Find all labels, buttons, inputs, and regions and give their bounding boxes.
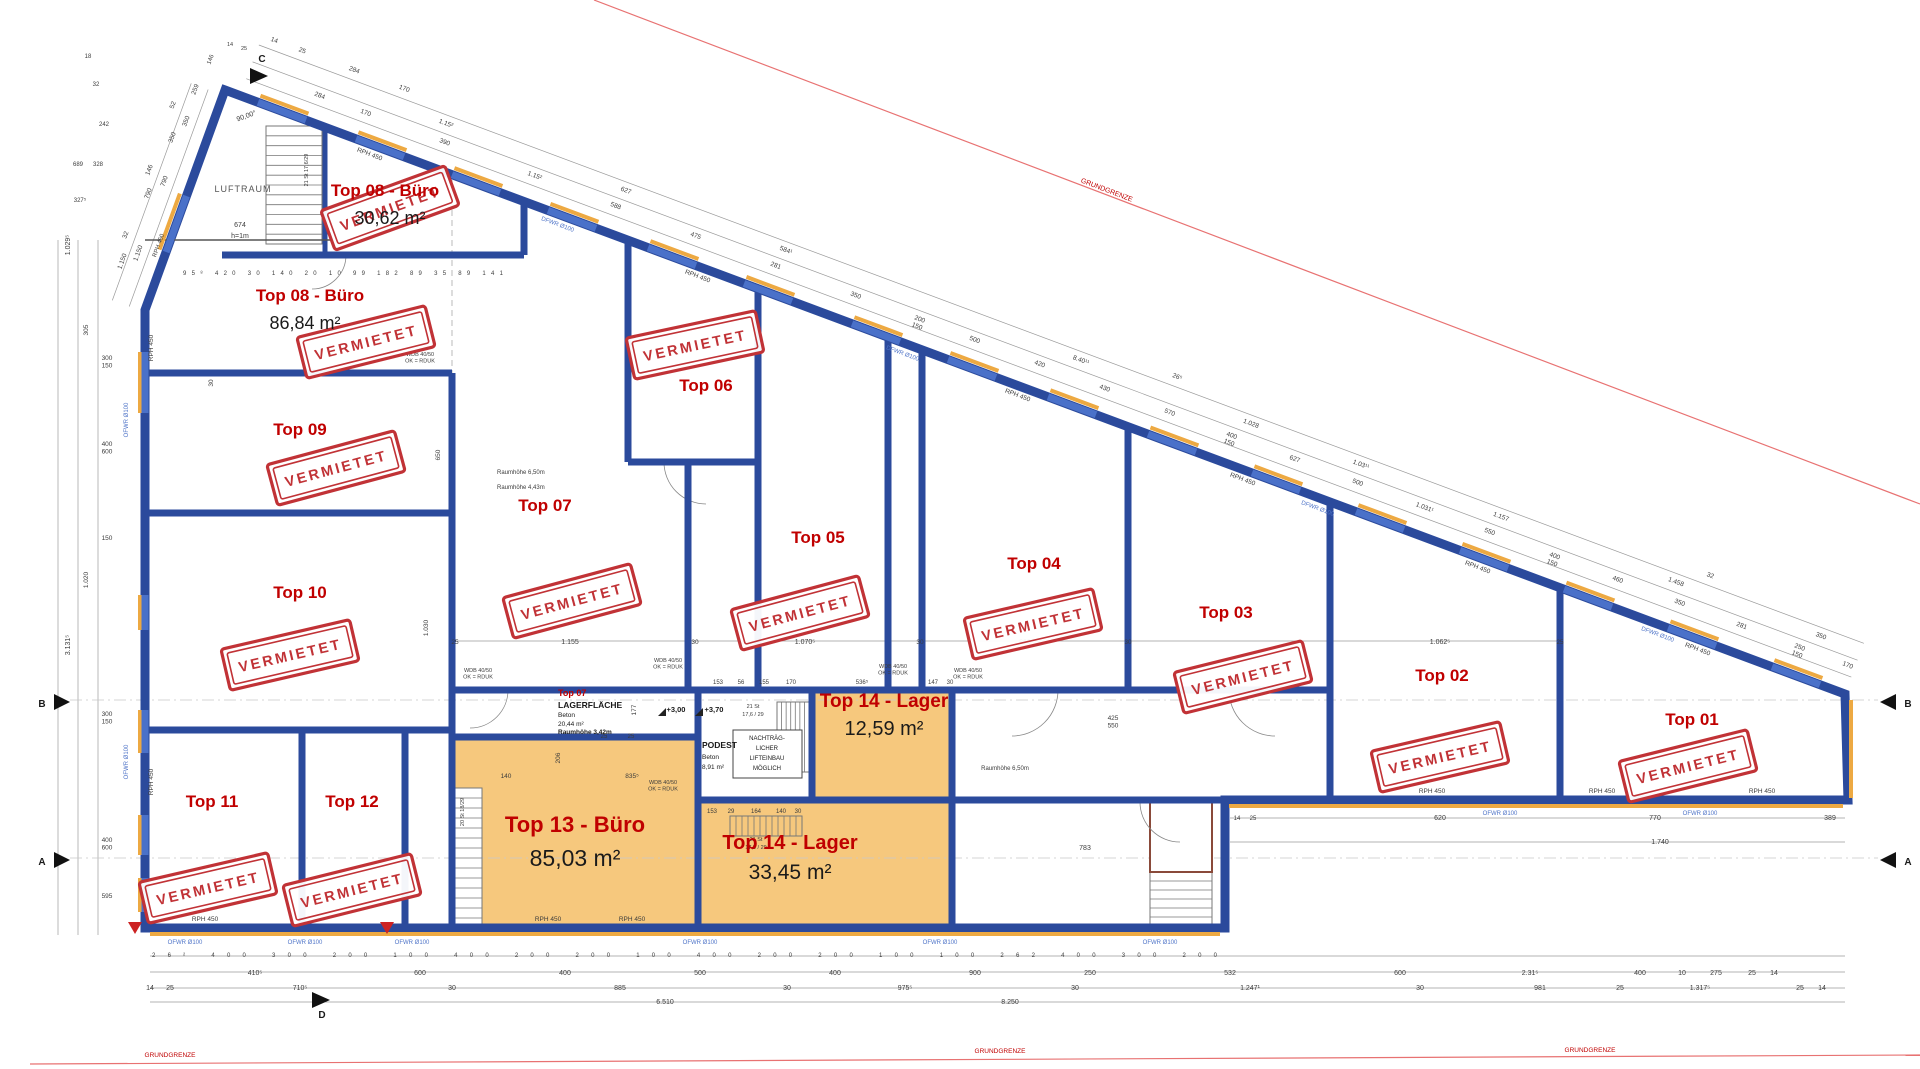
dim-label: 400 [829, 970, 841, 977]
annotation: 30 [208, 379, 215, 387]
annotation: 400600 [102, 837, 113, 852]
annotation: 259 [190, 83, 200, 96]
staircase [266, 126, 322, 244]
annotation: 170 [786, 680, 797, 686]
dim-label: 8.250 [1001, 999, 1019, 1006]
room-name: Top 09 [273, 420, 327, 439]
annotation: 1.740 [1651, 839, 1669, 846]
dim-label: 420 [1033, 359, 1046, 369]
dim-label: 1.150 [132, 244, 144, 262]
annotation: 1.030 [423, 619, 430, 636]
room-name: Top 07 [518, 496, 572, 515]
annotation: 164 [751, 809, 762, 815]
annotation: WDB 40/50OK = RDUK [653, 658, 683, 671]
dim-label: 30 [783, 985, 791, 992]
dim-label: 2.31⁵ [1522, 970, 1539, 977]
annotation: 783 [1079, 845, 1091, 852]
annotation: 300150 [102, 355, 113, 370]
annotation: 1.062⁵ [1430, 639, 1451, 646]
annotation: 18 [85, 54, 92, 60]
annotation: LUFTRAUM [215, 184, 272, 194]
fixture-box [1150, 802, 1212, 872]
dim-label: 975⁵ [898, 985, 913, 992]
room-label-top09: Top 09 [273, 420, 327, 439]
room-label-top12: Top 12 [325, 792, 379, 811]
room-name: Top 02 [1415, 666, 1469, 685]
section-marker-letter: D [318, 1010, 325, 1021]
dim-label: 627 [1288, 454, 1301, 464]
dim-label: 281 [1735, 621, 1748, 631]
dim-label: 275 [1710, 970, 1722, 977]
annotation: Beton [558, 712, 575, 719]
dim-label: 1.031¹ [1415, 501, 1435, 514]
dim-label: 900 [969, 970, 981, 977]
dim-label: 885 [614, 985, 626, 992]
stamp-vermietet: VERMIETET [1619, 730, 1757, 803]
section-marker-icon [1880, 694, 1896, 710]
room-name: Top 06 [679, 376, 733, 395]
door-swing [1012, 690, 1058, 736]
dim-label: 350 [849, 291, 862, 301]
annotation: OFWR Ø100 [1483, 811, 1518, 817]
stamp-vermietet: VERMIETET [267, 431, 405, 506]
grundgrenze-label: GRUNDGRENZE [1080, 178, 1134, 204]
annotation: LIFTEINBAU [750, 756, 785, 762]
dim-label: 460 [1611, 575, 1624, 585]
annotation: 835⁵ [625, 773, 639, 780]
dim-label: 584¹ [779, 245, 794, 256]
dim-label: 14 [1770, 970, 1778, 977]
annotation: Raumhöhe 4,43m [497, 485, 545, 491]
room-area: 85,03 m² [530, 845, 621, 871]
dim-label: 500 [1351, 478, 1364, 488]
annotation: 206 [555, 752, 562, 763]
dim-label: 500 [968, 335, 981, 345]
room-area: 33,45 m² [749, 861, 832, 884]
annotation: OFWR Ø100 [124, 744, 130, 779]
dim-label: 390 [438, 137, 451, 147]
annotation: 25 [241, 46, 247, 52]
annotation: 1.020 [83, 571, 90, 588]
room-name: Top 12 [325, 792, 379, 811]
staircase [1150, 872, 1212, 926]
annotation: 177 [631, 704, 638, 715]
annotation: Raumhöhe 6,50m [497, 470, 545, 476]
dim-label: 600 [414, 970, 426, 977]
room-label-top11: Top 11 [186, 792, 239, 811]
dim-label: 14 [1818, 985, 1826, 992]
annotation: 146 [207, 53, 216, 65]
annotation: OFWR Ø100 [923, 940, 958, 946]
dim-label: 30 [1416, 985, 1424, 992]
dim-label: 1.15² [438, 118, 455, 130]
dim-label: 32 [1706, 571, 1716, 580]
room-label-top10: Top 10 [273, 583, 327, 602]
dim-label: 284 [348, 65, 361, 75]
dim-label: 32 [121, 230, 130, 240]
annotation: 3.131⁵ [65, 635, 72, 656]
annotation: 56 [738, 680, 745, 686]
annotation: OFWR Ø100 [168, 940, 203, 946]
stamp-vermietet: VERMIETET [964, 589, 1102, 660]
annotation: RPH 450 [148, 768, 155, 795]
dim-label: 170 [1841, 660, 1854, 670]
level-marker-icon [658, 708, 666, 716]
annotation: 770 [1649, 815, 1661, 822]
dim-label: 1.03¹¹ [1352, 459, 1371, 472]
dim-label: 25 [1796, 985, 1804, 992]
annotation: PODEST [702, 740, 738, 750]
dim-label: 52 [169, 100, 178, 110]
annotation: RPH 450 [148, 334, 155, 361]
annotation: OFWR Ø100 [683, 940, 718, 946]
room-name: Top 01 [1665, 710, 1719, 729]
annotation: 790 [143, 187, 153, 200]
annotation: 140 [776, 809, 787, 815]
annotation: 30 [916, 639, 924, 646]
dim-label: 146 [144, 163, 154, 176]
annotation: +3,00 [667, 705, 686, 714]
annotation: 155 [759, 680, 770, 686]
annotation: OFWR Ø100 [1143, 940, 1178, 946]
annotation: 30 [1124, 639, 1132, 646]
annotation: 30 [947, 680, 954, 686]
section-marker-icon [312, 992, 330, 1008]
room-name: Top 14 - Lager [820, 691, 949, 712]
dim-label: 8.40¹¹ [1072, 354, 1091, 367]
stamp-vermietet: VERMIETET [139, 853, 277, 924]
annotation: +3,70 [705, 705, 724, 714]
dim-label: 350 [1673, 598, 1686, 608]
annotation: 1.029⁵ [65, 235, 72, 256]
annotation: WDB 40/50OK = RDUK [463, 668, 493, 681]
dim-label: 350 [181, 115, 191, 128]
room-name: Top 03 [1199, 603, 1253, 622]
annotation: RPH 450 [1749, 788, 1776, 795]
dim-label: 1.458 [1667, 576, 1685, 588]
floor-plan-page: Vermietungsplan Obergeschoss 2841703901.… [0, 0, 1920, 1069]
annotation: OFWR Ø100 [395, 940, 430, 946]
dim-label: 710⁵ [293, 985, 308, 992]
annotation: 689 [73, 162, 84, 168]
annotation: 536⁵ [856, 679, 869, 686]
dim-label: 1.028 [1242, 418, 1260, 430]
annotation: OFWR Ø100 [124, 402, 130, 437]
annotation: 620 [1434, 815, 1446, 822]
annotation: 389 [1824, 815, 1836, 822]
dim-label: 14 [146, 985, 154, 992]
dim-label: 1.317⁵ [1690, 985, 1711, 992]
dim-label: 570 [1163, 408, 1176, 418]
dim-label: 350 [1815, 631, 1828, 641]
annotation: 21 St 17,6/29 [304, 154, 310, 187]
dim-label: 400 [559, 970, 571, 977]
annotation: Beton [702, 754, 719, 761]
annotation: 25 [451, 639, 459, 646]
dim-label: 25 [1616, 985, 1624, 992]
annotation: RPH 450 [619, 916, 646, 923]
door-swing [470, 690, 508, 728]
section-marker-letter: A [1904, 857, 1911, 868]
stamp-vermietet: VERMIETET [221, 620, 359, 691]
annotation: 242 [99, 122, 110, 128]
room-label-top04: Top 04 [1007, 554, 1061, 573]
dim-label: 10 [1678, 970, 1686, 977]
annotation: 327⁵ [74, 197, 87, 204]
dim-label: 588 [609, 201, 622, 211]
room-name: Top 05 [791, 528, 845, 547]
stamp-vermietet: VERMIETET [503, 564, 641, 639]
room-name: Top 08 - Büro [256, 286, 364, 305]
section-marker-icon [54, 694, 70, 710]
dim-label: 170 [398, 84, 411, 94]
annotation: MÖGLICH [753, 765, 781, 772]
annotation: 29 [728, 809, 735, 815]
annotation: 150 [102, 535, 113, 542]
annotation: 147 [928, 680, 939, 686]
dim-label: 281 [769, 261, 782, 271]
annotation: 328 [93, 162, 104, 168]
annotation: NACHTRÄG- [749, 735, 785, 742]
annotation: LAGERFLÄCHE [558, 700, 623, 710]
annotation: Raumhöhe 6,50m [981, 766, 1029, 772]
annotation: Top 07 [558, 688, 586, 698]
annotation: OFWR Ø100 [288, 940, 323, 946]
annotation: 20,44 m² [558, 721, 584, 728]
annotation: WDB 40/50OK = RDUK [648, 780, 678, 793]
entry-arrow-icon [128, 922, 142, 934]
grundgrenze-label: GRUNDGRENZE [1565, 1047, 1617, 1054]
staircase [452, 788, 482, 928]
dim-label: 627 [620, 186, 633, 196]
annotation: 90,00° [235, 109, 257, 124]
annotation: RPH 450 [535, 916, 562, 923]
annotation: 30 [795, 809, 802, 815]
annotation: h=1m [231, 233, 249, 240]
dim-row: 95⁸ 420 30 140 20 10 99 182 89 35 89 141 [183, 270, 504, 277]
grundgrenze-label: GRUNDGRENZE [145, 1052, 197, 1059]
annotation: 30 [691, 639, 699, 646]
annotation: 1.150 [117, 252, 129, 270]
dim-label: 1.247¹ [1240, 985, 1261, 992]
dim-label: 790 [160, 175, 170, 188]
dim-label: 6.510 [656, 999, 674, 1006]
room-name: Top 14 - Lager [722, 832, 857, 854]
stamp-vermietet: VERMIETET [1174, 641, 1312, 714]
annotation: 1.070⁵ [795, 639, 816, 646]
room-name: Top 08 - Büro [331, 181, 439, 200]
floor-plan-drawing: 2841703901.15²58847528135020015050042043… [0, 0, 1920, 1069]
section-marker-letter: B [38, 699, 45, 710]
room-area: 12,59 m² [845, 718, 924, 740]
dim-label: 250150 [1791, 642, 1807, 660]
annotation: 140 [501, 773, 512, 780]
annotation: 17,6 / 29 [742, 712, 763, 718]
section-marker-icon [250, 68, 268, 84]
dim-label: 14 [270, 36, 280, 45]
annotation: 14 [227, 42, 233, 48]
dim-label: 550 [1483, 527, 1496, 537]
annotation: 20 St 18/29 [460, 798, 466, 826]
annotation: Raumhöhe 3,42m [558, 729, 612, 736]
room-label-top02: Top 02 [1415, 666, 1469, 685]
section-marker-letter: C [258, 54, 265, 65]
annotation: 25 [628, 734, 635, 740]
room-name: Top 11 [186, 792, 239, 811]
room-label-top05: Top 05 [791, 528, 845, 547]
annotation: RPH 450 [1419, 788, 1446, 795]
dim-label: 30 [448, 985, 456, 992]
annotation: 595 [102, 893, 113, 900]
annotation: 305 [83, 324, 90, 335]
annotation: 1.155 [561, 639, 579, 646]
annotation: RPH 450 [1589, 788, 1616, 795]
room-label-top06: Top 06 [679, 376, 733, 395]
annotation: 32 [93, 82, 100, 88]
dim-label: 981 [1534, 985, 1546, 992]
dim-label: 430 [1098, 383, 1111, 393]
dim-label: 1.15² [526, 170, 543, 182]
annotation: RPH 450 [192, 916, 219, 923]
annotation: 25 [1250, 816, 1257, 822]
room-label-top07: Top 07 [518, 496, 572, 515]
dim-label: 500 [694, 970, 706, 977]
annotation: 153 [713, 680, 724, 686]
dim-label: 170 [359, 108, 372, 118]
section-marker-letter: A [38, 857, 45, 868]
section-marker-letter: B [1904, 699, 1911, 710]
dim-label: 25 [166, 985, 174, 992]
annotation: 650 [435, 449, 442, 460]
annotation: 350 [167, 131, 177, 144]
dim-label: 475 [689, 231, 702, 241]
section-marker-icon [54, 852, 70, 868]
annotation: WDB 40/50OK = RDUK [878, 664, 908, 677]
annotation: 400600 [102, 441, 113, 456]
section-marker-icon [1880, 852, 1896, 868]
annotation: 14 [1234, 816, 1241, 822]
dim-label: 400 [1634, 970, 1646, 977]
dim-label: 600 [1394, 970, 1406, 977]
annotation: 25 [1556, 639, 1564, 646]
dim-label: 1.157 [1492, 511, 1510, 523]
dim-label: 250 [1084, 970, 1096, 977]
dim-label: 532 [1224, 970, 1236, 977]
room-label-top03: Top 03 [1199, 603, 1253, 622]
room-name: Top 10 [273, 583, 327, 602]
dim-label: 25 [298, 46, 308, 55]
annotation: WDB 40/50OK = RDUK [953, 668, 983, 681]
room-name: Top 04 [1007, 554, 1061, 573]
annotation: 300150 [102, 711, 113, 726]
annotation: 674 [234, 222, 246, 229]
dim-label: 400150 [1223, 431, 1239, 449]
dim-label: 410⁵ [248, 970, 263, 977]
room-label-top01: Top 01 [1665, 710, 1719, 729]
dim-label: 400150 [1546, 551, 1562, 569]
dim-label: 200150 [911, 314, 927, 332]
room-area: 86,84 m² [269, 313, 340, 333]
annotation: 153 [707, 809, 718, 815]
room-area: 30,62 m² [354, 208, 425, 228]
annotation: OFWR Ø100 [1683, 811, 1718, 817]
dim-label: 30 [1071, 985, 1079, 992]
annotation: LICHER [756, 746, 779, 752]
dim-label: 25 [1748, 970, 1756, 977]
room-name: Top 13 - Büro [505, 812, 645, 837]
dim-label: 284 [313, 91, 326, 101]
grundgrenze-label: GRUNDGRENZE [975, 1048, 1027, 1055]
stamp-vermietet: VERMIETET [626, 311, 764, 380]
annotation: 425550 [1108, 715, 1119, 730]
annotation: 8,91 m² [702, 764, 725, 771]
annotation: 21 St [747, 704, 760, 710]
dim-label: 26⁵ [1171, 372, 1183, 382]
stamp-vermietet: VERMIETET [1371, 722, 1509, 793]
